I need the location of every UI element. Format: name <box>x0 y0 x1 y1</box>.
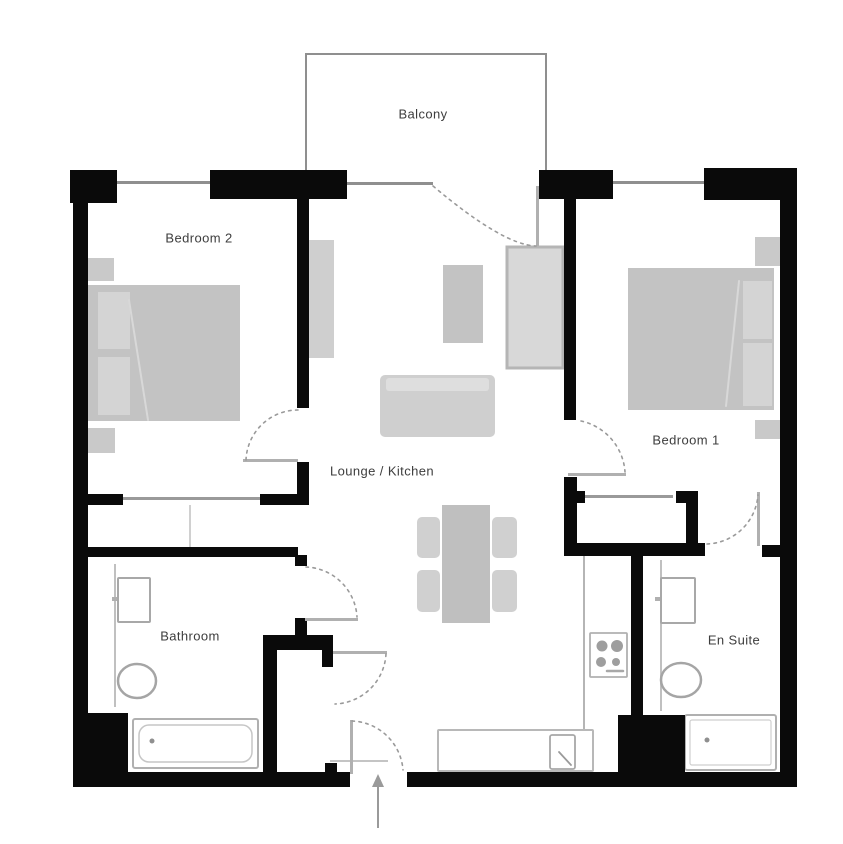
dining-chair-2 <box>492 517 517 558</box>
bedroom1-door-arc <box>581 421 625 472</box>
entry-door-leaf <box>350 720 353 774</box>
dining-chair-1 <box>417 517 440 558</box>
room-label-bathroom: Bathroom <box>160 629 220 644</box>
bottom-wall-right <box>407 772 797 787</box>
wardrobe-divider <box>189 505 191 547</box>
bedroom2-nightstand-bottom <box>88 428 115 453</box>
bedroom2-door-arc <box>246 410 298 460</box>
lounge-sofa-back <box>386 378 489 391</box>
entry-door-arc <box>352 721 403 770</box>
room-label-bedroom-2: Bedroom 2 <box>165 231 232 246</box>
bathroom-corner-mass <box>85 713 128 775</box>
vestibule-door-leaf <box>333 651 387 654</box>
bedroom1-nightstand-bottom <box>755 420 781 439</box>
entry-arrow-head <box>372 774 384 787</box>
kitchen-counter-edge <box>583 553 585 731</box>
ensuite-top-wall-right <box>762 545 782 557</box>
closet-bottom-wall <box>564 543 705 556</box>
top-wall-bedroom2 <box>210 170 347 199</box>
room-label-balcony: Balcony <box>398 107 447 122</box>
bathroom-door-arc <box>306 567 357 617</box>
wardrobe-slider <box>123 497 260 500</box>
balcony-door-leaf <box>536 186 539 246</box>
floorplan-svg <box>0 0 843 844</box>
ensuite-sink <box>661 578 695 623</box>
stove-burner-2 <box>611 640 623 652</box>
balcony-window <box>347 182 433 185</box>
lounge-armchair <box>443 265 483 343</box>
bathroom-sink <box>118 578 150 622</box>
closet-hook-left <box>574 491 585 503</box>
left-wall <box>73 170 88 787</box>
stove-burner-1 <box>597 641 608 652</box>
stove-burner-3 <box>596 657 606 667</box>
ensuite-left-wall <box>631 555 643 715</box>
floorplan: Balcony Bedroom 2 Bedroom 1 Lounge / Kit… <box>0 0 843 844</box>
closet-slider <box>585 495 673 498</box>
vestibule-wall <box>263 635 333 650</box>
bathroom-toilet <box>118 664 156 698</box>
ensuite-toilet <box>661 663 701 697</box>
entry-threshold <box>330 760 388 762</box>
bedroom2-pillow-1 <box>98 292 130 349</box>
wardrobe-wall-left <box>87 494 123 505</box>
bedroom2-nightstand-top <box>88 258 114 281</box>
bedroom2-window <box>117 181 210 184</box>
room-label-en-suite: En Suite <box>708 633 760 648</box>
bathtub-drain <box>150 739 155 744</box>
dining-chair-3 <box>417 570 440 612</box>
dining-chair-4 <box>492 570 517 612</box>
bathroom-door-top-jamb <box>295 555 307 566</box>
bedroom1-wall-upper <box>564 199 576 420</box>
right-wall <box>780 170 797 787</box>
room-label-bedroom-1: Bedroom 1 <box>652 433 719 448</box>
lounge-unit-right <box>507 247 563 368</box>
balcony-door-arc <box>433 186 536 246</box>
bathroom-right-wall <box>263 650 277 772</box>
entry-jamb <box>325 763 337 774</box>
vestibule-door-arc <box>335 654 386 704</box>
furniture-layer <box>88 237 782 623</box>
bedroom1-nightstand-top <box>755 237 782 266</box>
kitchen-sink <box>550 735 575 769</box>
top-wall-center <box>539 170 613 199</box>
bedroom1-pillow-2 <box>743 343 772 406</box>
shower-drain <box>705 738 710 743</box>
windows-layer <box>117 181 704 185</box>
bathroom-top-wall <box>85 547 298 557</box>
bedroom1-pillow-1 <box>743 281 772 339</box>
stove-burner-4 <box>612 658 620 666</box>
balcony-edge-right <box>545 53 547 172</box>
lounge-unit-left <box>308 240 334 358</box>
balcony-edge-left <box>305 53 307 172</box>
closet-hook-right <box>676 491 686 503</box>
shower-tray-inner <box>690 720 771 765</box>
ensuite-door-arc <box>707 495 758 544</box>
kitchen-corner-mass <box>618 715 685 773</box>
wardrobe-wall-right <box>260 494 307 505</box>
bathroom-counter-edge <box>114 564 116 707</box>
bedroom2-pillow-2 <box>98 357 130 415</box>
bathroom-door-leaf <box>305 618 358 621</box>
balcony-edge-top <box>305 53 547 55</box>
bedroom1-door-leaf <box>568 473 626 476</box>
bedroom1-window <box>613 181 704 184</box>
bathtub-inner <box>139 725 252 762</box>
vestibule-door-jamb <box>322 650 333 667</box>
room-label-lounge-kitchen: Lounge / Kitchen <box>330 464 434 479</box>
entry-arrow-layer <box>372 774 384 828</box>
dining-table <box>442 505 490 623</box>
bedroom2-door-leaf <box>243 459 298 462</box>
bedroom2-wall <box>297 199 309 408</box>
